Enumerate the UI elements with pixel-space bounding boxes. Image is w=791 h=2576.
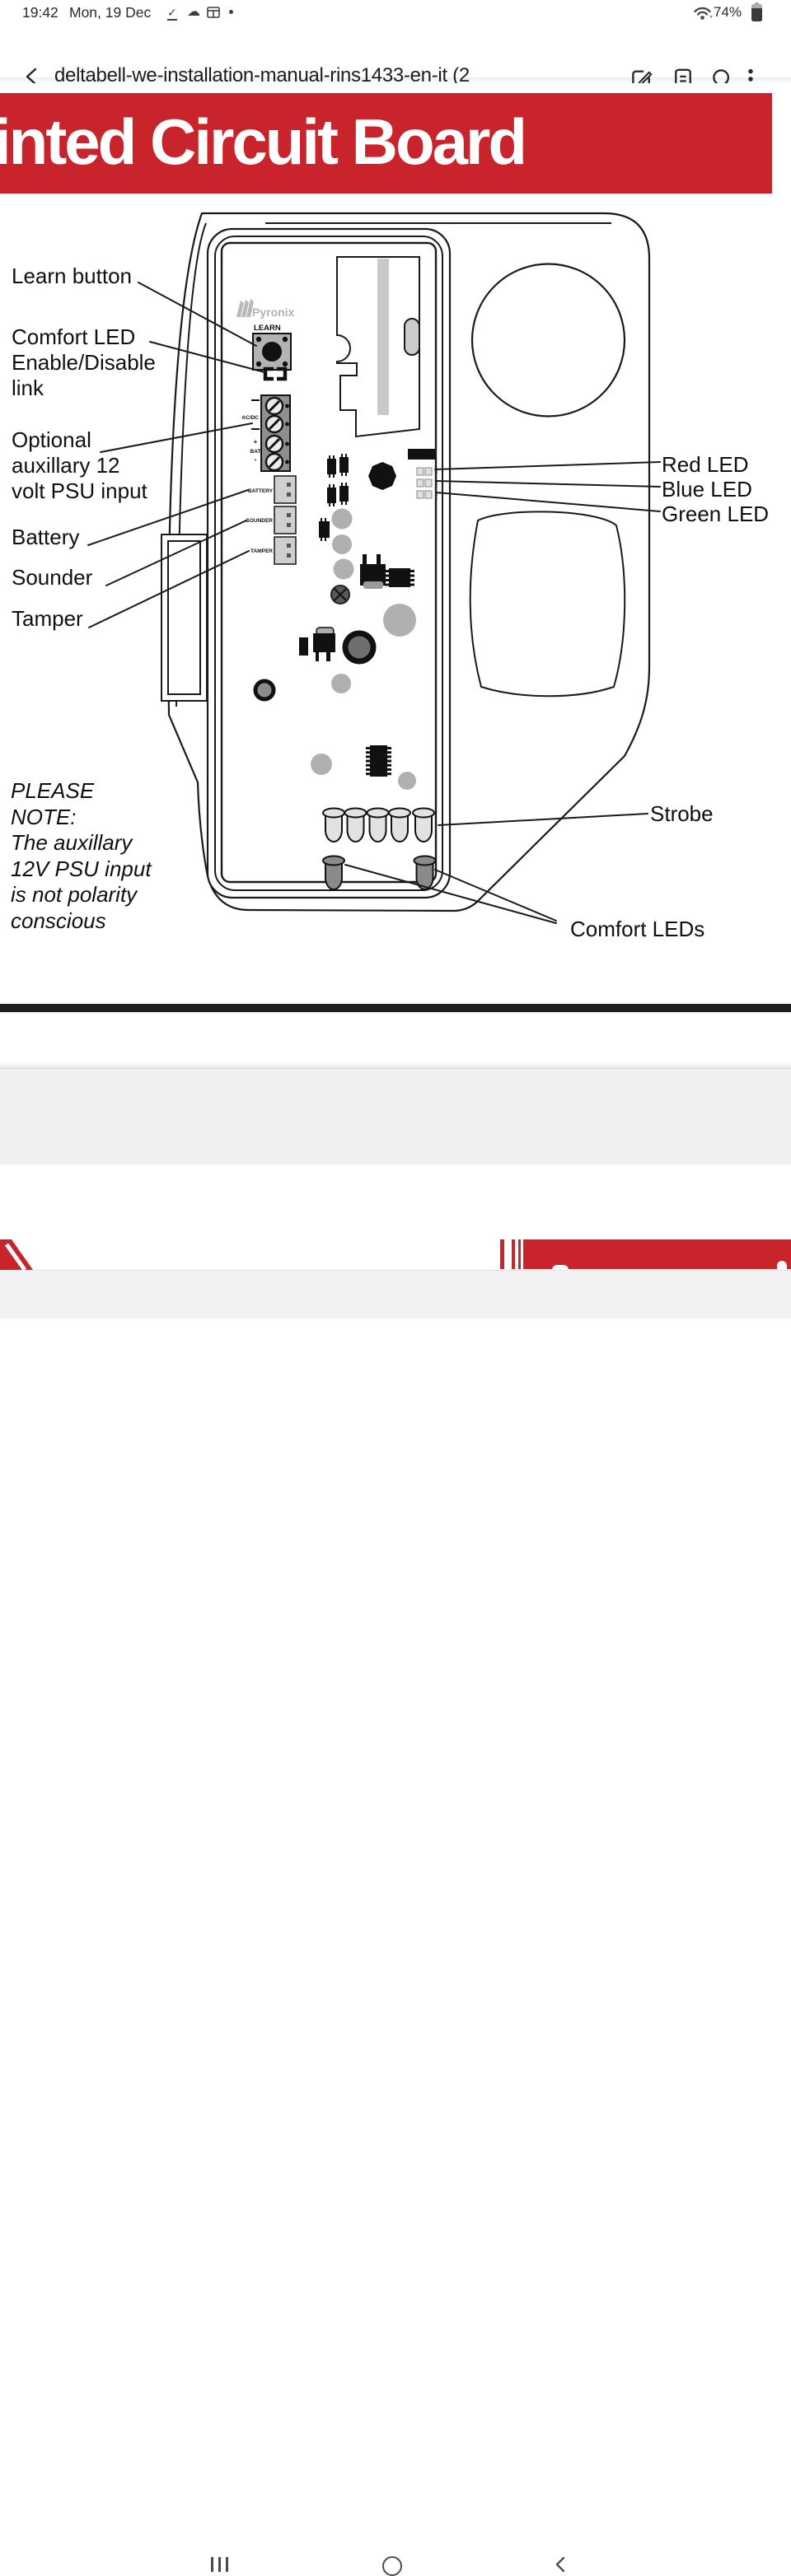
comfort-leds-label: Comfort LEDs <box>570 917 704 942</box>
page-gap <box>0 1068 791 1165</box>
sounder-connector <box>274 506 296 534</box>
tamper-label: Tamper <box>12 606 83 632</box>
battery-conn-label: BATTERY <box>248 488 274 494</box>
strobe-label: Strobe <box>650 801 714 827</box>
tamper-connector <box>274 537 296 564</box>
section-banner: inted Circuit Board <box>0 93 772 194</box>
battery-connector <box>274 476 296 503</box>
strobe-leds <box>323 809 434 842</box>
calendar-icon <box>207 7 220 18</box>
bat-plus: + <box>254 438 258 446</box>
bat-label: BAT <box>250 449 261 455</box>
page-bottom-border <box>0 1004 791 1012</box>
bat-minus: - <box>255 455 257 464</box>
app-bar-shadow <box>0 77 791 83</box>
sounder-conn-label: SOUNDER <box>246 518 273 524</box>
learn-button-label: Learn button <box>12 264 132 289</box>
comfort-link-label: Comfort LED Enable/Disable link <box>12 324 156 401</box>
led-silkscreen-labels: LED 1 LED 2 LED 3 <box>434 467 438 501</box>
home-icon[interactable] <box>382 2556 402 2576</box>
sounder-aperture <box>472 264 625 417</box>
status-bar: 19:42 Mon, 19 Dec ✓ ☁ 74% <box>0 0 791 26</box>
psu-input-label: Optional auxillary 12 volt PSU input <box>12 427 147 504</box>
battery-icon <box>751 4 762 21</box>
battery-percent: 74% <box>714 4 742 21</box>
letter-top-fragment-right <box>777 1261 787 1270</box>
wifi-icon <box>693 5 714 21</box>
cloud-icon: ☁ <box>187 6 200 19</box>
blue-led-label: Blue LED <box>662 477 752 502</box>
battery-compartment <box>470 511 625 696</box>
red-led-label: Red LED <box>662 452 749 478</box>
acdc-label: AC/DC <box>241 415 259 421</box>
please-note: PLEASE NOTE: The auxillary 12V PSU input… <box>11 778 152 935</box>
page-edge-shadow <box>0 1062 791 1068</box>
app-bar: deltabell-we-installation-manual-rins143… <box>0 26 791 77</box>
battery-label: Battery <box>12 525 79 550</box>
green-led-label: Green LED <box>662 502 769 527</box>
logo-wing-fragment <box>0 1238 33 1270</box>
tamper-conn-label: TAMPER <box>250 548 273 554</box>
learn-label: LEARN <box>254 324 281 333</box>
date: Mon, 19 Dec <box>69 4 151 21</box>
recents-icon[interactable] <box>211 2557 232 2572</box>
clock: 19:42 <box>22 4 59 21</box>
brand-logo: Pyronix <box>252 306 295 319</box>
navigation-bar <box>0 1270 791 1318</box>
sounder-label: Sounder <box>12 565 92 590</box>
nav-back-icon[interactable] <box>555 2556 565 2573</box>
banner-title: inted Circuit Board <box>0 93 525 190</box>
next-page-red-band <box>500 1239 791 1270</box>
next-page-fragment[interactable] <box>0 1164 791 1270</box>
sync-complete-icon: ✓ <box>167 6 177 21</box>
notification-dot-icon <box>229 10 233 14</box>
